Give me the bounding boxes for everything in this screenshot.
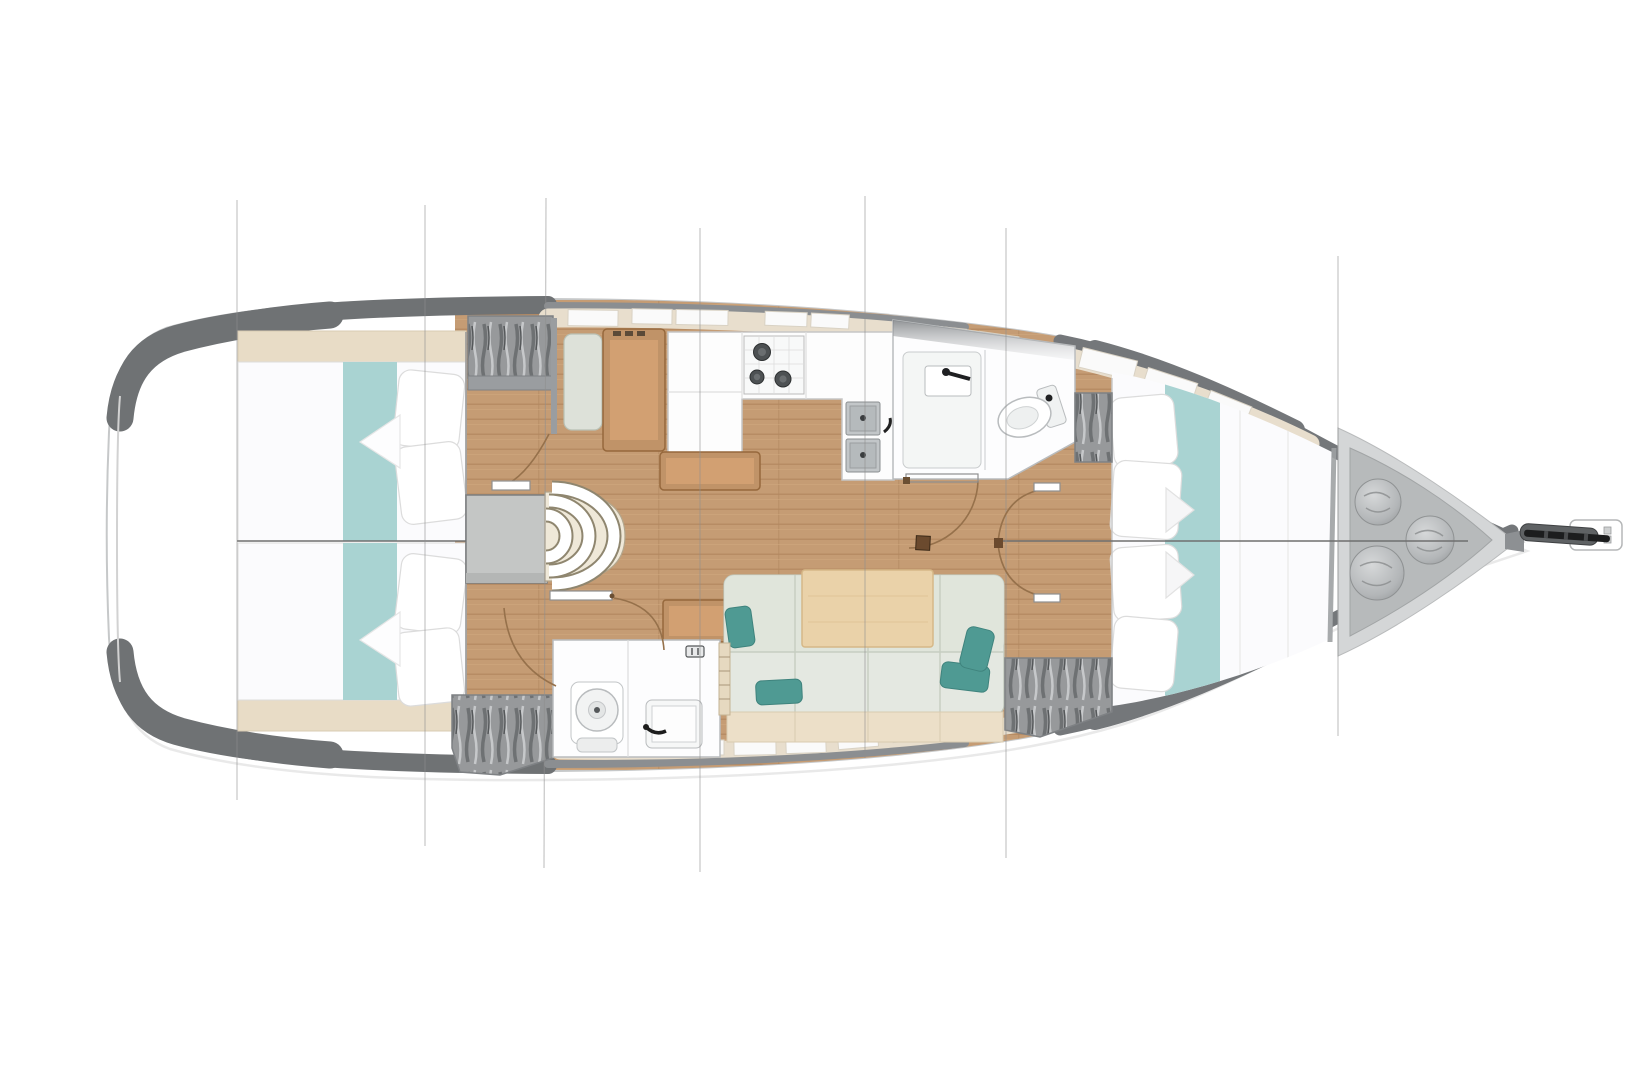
wardrobe-aft-bottom <box>452 695 553 775</box>
salon-table <box>802 570 933 647</box>
head-tap-icon <box>1046 395 1053 402</box>
aft-shelf-bottom <box>238 700 466 731</box>
anchor-locker <box>1338 428 1516 656</box>
rope-coil-icon <box>1355 479 1401 525</box>
rope-coil-icon <box>1350 546 1404 600</box>
aft-cabin-port <box>238 362 469 541</box>
mast-step <box>916 536 931 551</box>
toilet-icon <box>571 682 623 752</box>
bow-hardware <box>1505 520 1622 552</box>
chart-table <box>603 329 665 451</box>
wardrobe-aft-top <box>468 316 553 378</box>
yacht-floor-plan <box>0 0 1635 1080</box>
rope-coil-icon <box>1406 516 1454 564</box>
aft-cabin-starboard <box>238 543 468 707</box>
galley-island <box>660 452 760 490</box>
stove <box>744 336 804 394</box>
engine-compartment <box>466 495 547 583</box>
head-with-shower <box>893 320 1075 479</box>
nav-wall <box>551 318 557 434</box>
nav-seat <box>564 334 602 430</box>
wardrobe-fwd-top <box>1075 393 1112 462</box>
single-seat <box>663 600 731 642</box>
wardrobe-aft-top-shelf <box>468 376 553 390</box>
vent-glyph-icon <box>686 646 704 657</box>
floor-plan-canvas <box>0 0 1635 1080</box>
engine-compartment-lip <box>466 573 547 583</box>
day-head <box>553 640 730 757</box>
washbasin <box>643 700 702 748</box>
shelf-strip <box>719 643 730 715</box>
aft-shelf-top <box>238 331 466 362</box>
